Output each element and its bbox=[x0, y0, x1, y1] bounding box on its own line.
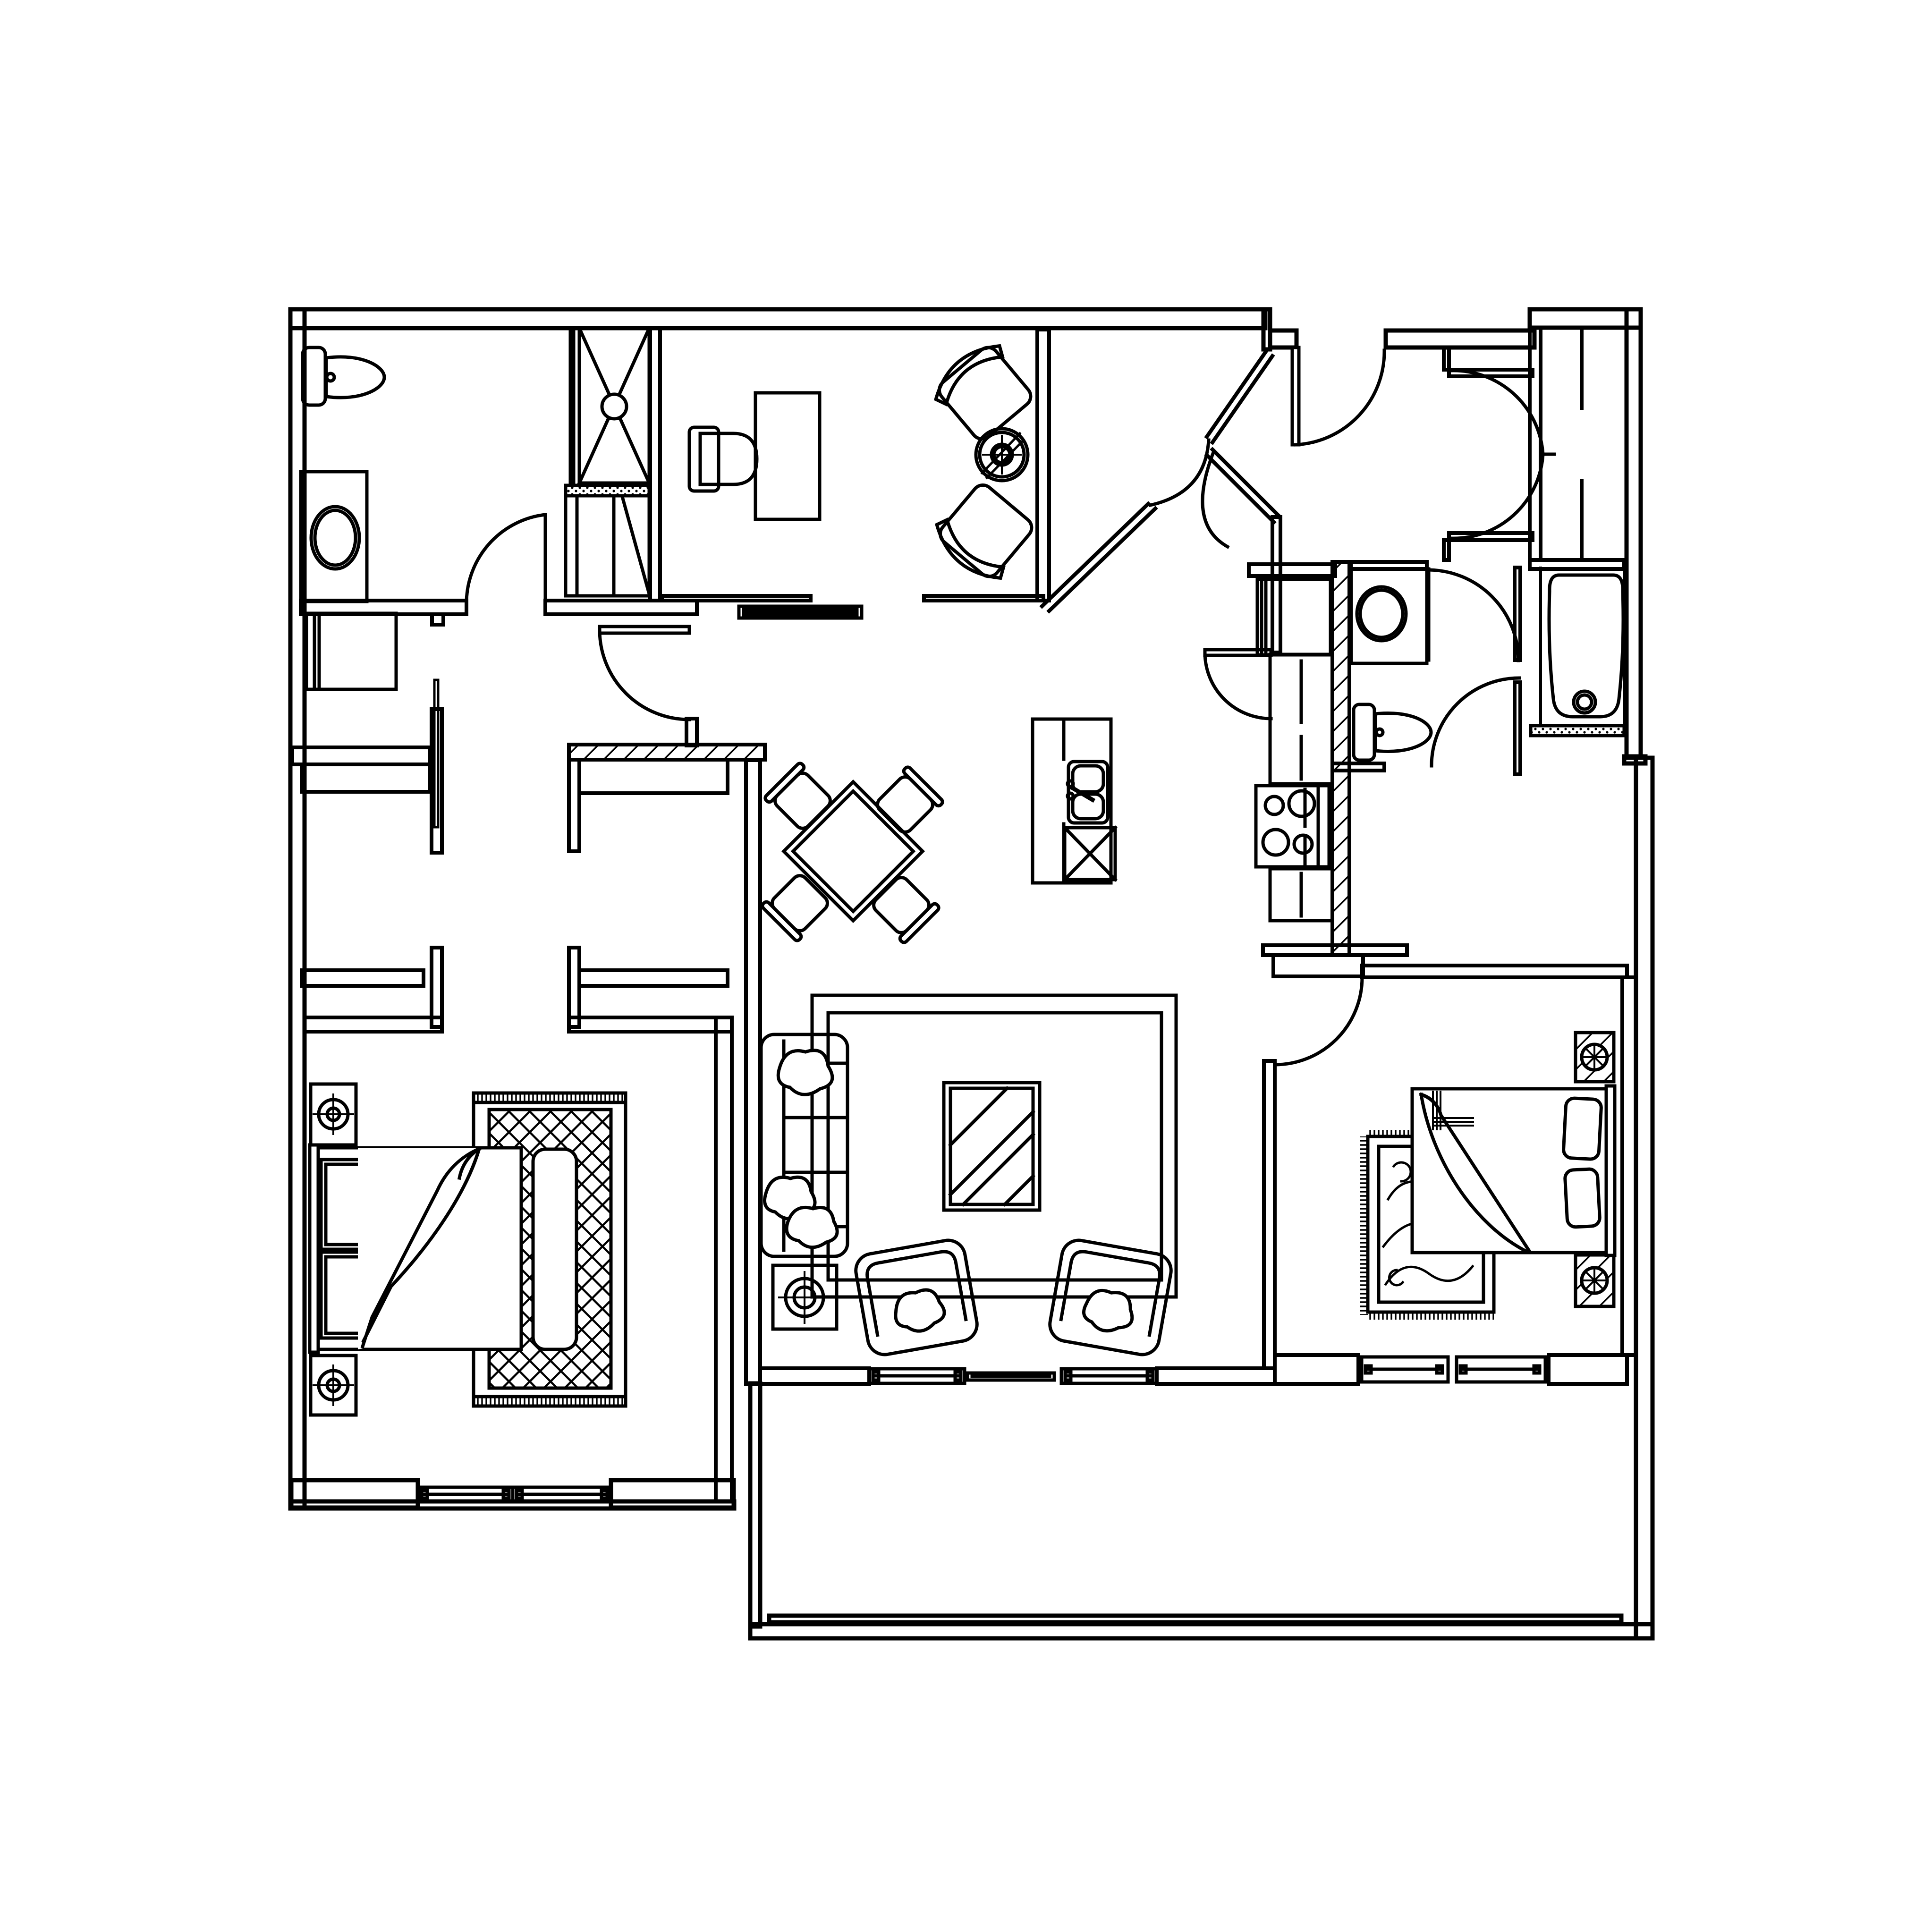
floor-plan-canvas bbox=[0, 0, 1932, 1932]
wall-kitchen-hatched bbox=[1332, 562, 1349, 955]
wall-closet2-north-hatched bbox=[569, 745, 765, 760]
nightstand-bottom bbox=[311, 1356, 356, 1415]
nightstand-top bbox=[1576, 1033, 1614, 1082]
bed bbox=[1412, 1086, 1615, 1255]
bed bbox=[310, 1145, 521, 1352]
nightstand-bottom bbox=[1576, 1255, 1614, 1306]
sliding-door-office bbox=[739, 606, 862, 618]
nook-round-table bbox=[976, 429, 1028, 481]
sofa-pillow bbox=[778, 1051, 832, 1095]
foot-bench bbox=[533, 1149, 576, 1349]
tub-shelf-dotted bbox=[1531, 726, 1624, 736]
nightstand-top bbox=[311, 1084, 356, 1145]
window-living-center-overlap bbox=[967, 1373, 1054, 1380]
